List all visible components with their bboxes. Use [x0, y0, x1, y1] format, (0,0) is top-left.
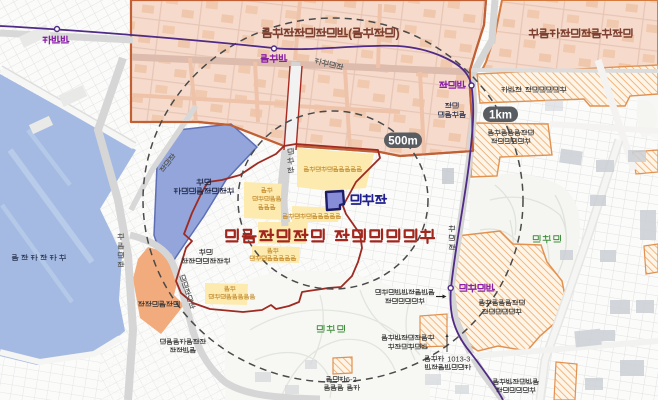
svg-text:1km: 1km — [489, 110, 512, 122]
svg-text:): ) — [396, 27, 400, 41]
svg-text:1013-3: 1013-3 — [447, 355, 470, 364]
svg-text:6-2: 6-2 — [346, 375, 357, 384]
svg-text:500m: 500m — [388, 136, 417, 148]
